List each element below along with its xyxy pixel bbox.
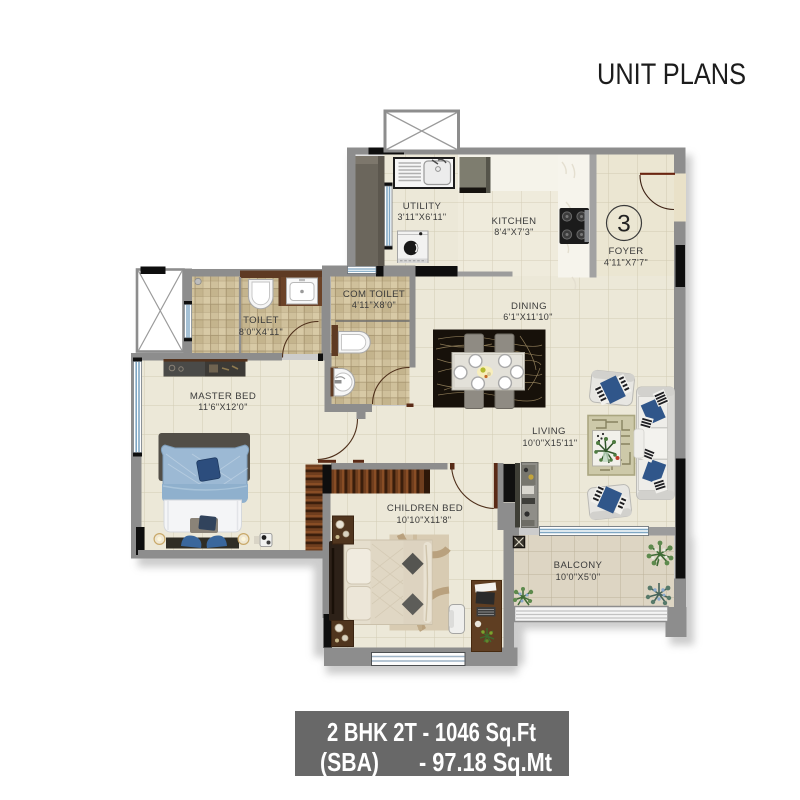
svg-text:3'11"X6'11": 3'11"X6'11" bbox=[398, 212, 447, 222]
svg-text:4'11"X7'7": 4'11"X7'7" bbox=[604, 258, 648, 268]
svg-text:6'1"X11'10": 6'1"X11'10" bbox=[503, 312, 553, 322]
svg-text:11'6"X12'0": 11'6"X12'0" bbox=[198, 402, 248, 412]
svg-text:8'4"X7'3": 8'4"X7'3" bbox=[494, 227, 533, 237]
svg-text:UTILITY: UTILITY bbox=[403, 201, 442, 212]
svg-text:- 97.18 Sq.Mt: - 97.18 Sq.Mt bbox=[419, 747, 552, 777]
svg-text:DINING: DINING bbox=[511, 301, 547, 312]
svg-text:KITCHEN: KITCHEN bbox=[492, 216, 537, 227]
svg-text:CHILDREN BED: CHILDREN BED bbox=[387, 503, 463, 514]
svg-text:FOYER: FOYER bbox=[608, 246, 643, 257]
svg-text:UNIT PLANS: UNIT PLANS bbox=[597, 58, 746, 91]
svg-text:MASTER BED: MASTER BED bbox=[190, 391, 256, 402]
svg-text:2 BHK 2T - 1046 Sq.Ft: 2 BHK 2T - 1046 Sq.Ft bbox=[327, 717, 536, 747]
svg-text:8'0"X4'11": 8'0"X4'11" bbox=[239, 327, 283, 337]
svg-text:BALCONY: BALCONY bbox=[554, 560, 603, 571]
svg-text:COM TOILET: COM TOILET bbox=[343, 289, 405, 300]
svg-text:TOILET: TOILET bbox=[243, 315, 279, 326]
svg-text:(SBA): (SBA) bbox=[320, 747, 379, 777]
svg-text:10'0"X15'11": 10'0"X15'11" bbox=[523, 438, 578, 448]
svg-text:10'0"X5'0": 10'0"X5'0" bbox=[556, 572, 601, 582]
svg-text:4'11"X8'0": 4'11"X8'0" bbox=[352, 300, 396, 310]
svg-text:LIVING: LIVING bbox=[532, 426, 566, 437]
svg-text:3: 3 bbox=[617, 211, 631, 238]
svg-text:10'10"X11'8": 10'10"X11'8" bbox=[397, 515, 452, 525]
